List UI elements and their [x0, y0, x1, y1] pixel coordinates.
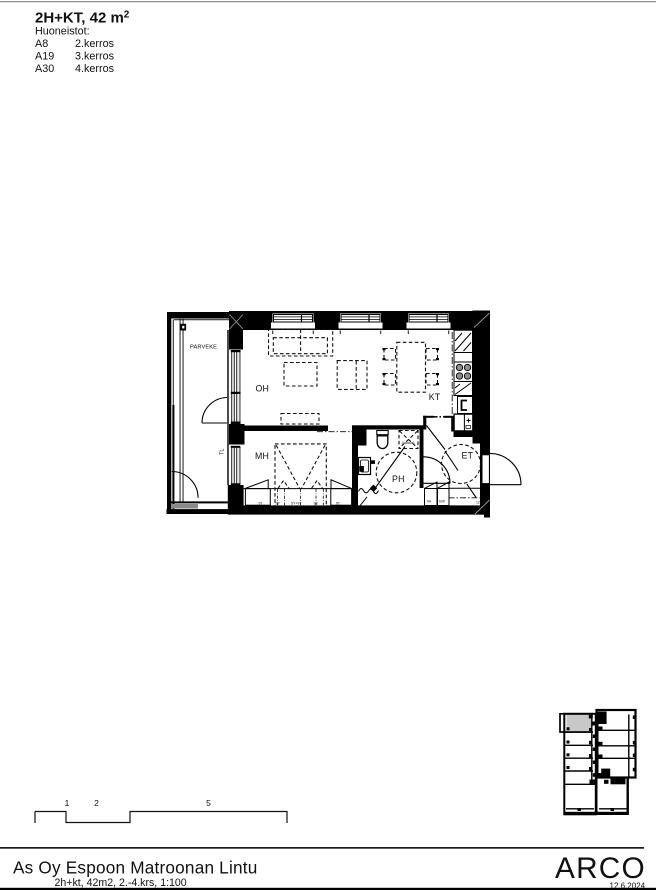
svg-text:Huoneistot:: Huoneistot:: [35, 26, 90, 38]
svg-text:ARCO: ARCO: [555, 852, 646, 885]
svg-text:OH: OH: [256, 383, 270, 393]
svg-text:MH: MH: [255, 451, 269, 461]
svg-text:PH: PH: [392, 474, 405, 484]
svg-text:A30: A30: [35, 63, 54, 75]
svg-text:2.kerros: 2.kerros: [75, 38, 115, 50]
svg-text:PARVEKE: PARVEKE: [190, 345, 217, 351]
svg-text:SY: SY: [314, 502, 319, 506]
svg-text:KT: KT: [429, 392, 441, 402]
svg-text:A19: A19: [35, 51, 54, 63]
svg-text:SY+9T: SY+9T: [291, 502, 301, 506]
svg-text:ET: ET: [462, 451, 474, 461]
svg-text:1: 1: [65, 798, 70, 808]
svg-text:3.kerros: 3.kerros: [75, 51, 115, 63]
svg-text:60K: 60K: [439, 500, 446, 504]
svg-text:120S: 120S: [476, 501, 485, 505]
svg-text:9T: 9T: [336, 502, 340, 506]
svg-text:2: 2: [94, 798, 99, 808]
svg-text:A8: A8: [35, 38, 48, 50]
svg-text:9T: 9T: [259, 502, 263, 506]
svg-text:4.kerros: 4.kerros: [75, 63, 115, 75]
svg-text:As Oy Espoon Matroonan Lintu: As Oy Espoon Matroonan Lintu: [13, 858, 257, 878]
svg-text:5: 5: [206, 798, 211, 808]
svg-text:2h+kt, 42m2, 2.-4.krs, 1:100: 2h+kt, 42m2, 2.-4.krs, 1:100: [55, 877, 187, 889]
svg-text:SY: SY: [276, 502, 281, 506]
svg-text:2H+KT, 42 m2: 2H+KT, 42 m2: [35, 10, 130, 27]
svg-text:(varaus): (varaus): [402, 441, 414, 445]
svg-text:9H: 9H: [427, 500, 432, 504]
svg-text:TL: TL: [220, 449, 226, 455]
